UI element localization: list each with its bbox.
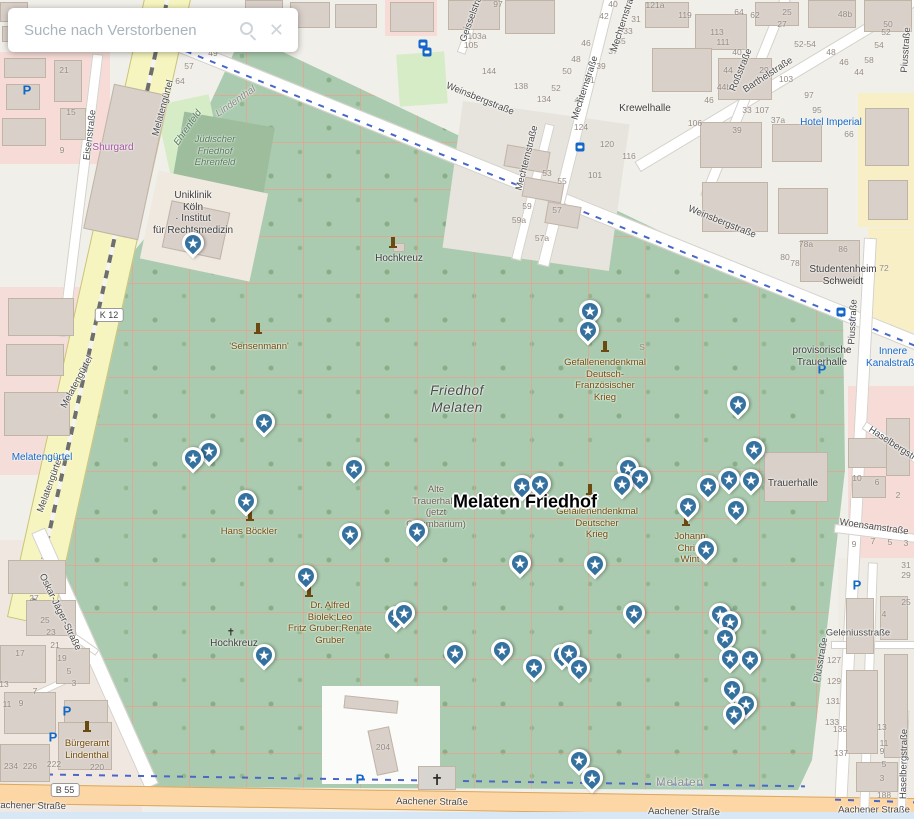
star-icon: ★ bbox=[447, 645, 463, 661]
search-box[interactable]: ✕ bbox=[8, 8, 298, 52]
house-number: 58 bbox=[864, 55, 873, 65]
poi-label-line: Ehrenfeld bbox=[195, 157, 236, 169]
parking-icon: P bbox=[853, 578, 862, 593]
street-label: Piusstraße bbox=[846, 299, 859, 345]
close-icon[interactable]: ✕ bbox=[265, 21, 288, 39]
house-number: S bbox=[639, 342, 645, 352]
poi-label: FriedhofMelaten bbox=[430, 382, 484, 416]
house-number: 39 bbox=[732, 125, 741, 135]
monument-icon bbox=[85, 721, 89, 730]
poi-label-line: Melaten bbox=[430, 399, 484, 416]
grave-pin-marker[interactable]: ★ bbox=[518, 651, 549, 682]
route-badge: K 12 bbox=[95, 308, 124, 322]
parking-icon: P bbox=[356, 772, 365, 787]
grave-pin-marker[interactable]: ★ bbox=[230, 485, 261, 516]
house-number: 9 bbox=[19, 698, 24, 708]
house-number: 50 bbox=[562, 66, 571, 76]
house-number: 48 bbox=[571, 54, 580, 64]
house-number: 9 bbox=[852, 539, 857, 549]
house-number: 80 bbox=[780, 252, 789, 262]
poi-label-line: Krieg bbox=[564, 392, 646, 404]
house-number: 52-54 bbox=[794, 39, 816, 49]
house-number: 234 bbox=[4, 761, 18, 771]
house-number: 31 bbox=[901, 560, 910, 570]
house-number: 57 bbox=[552, 205, 561, 215]
house-number: 54 bbox=[874, 40, 883, 50]
poi-label-line: Friedhof bbox=[430, 382, 484, 399]
house-number: 55 bbox=[557, 176, 566, 186]
house-number: 48 bbox=[826, 47, 835, 57]
street-label: Oskar-Jäger-Straße bbox=[37, 572, 84, 652]
house-number: 57 bbox=[184, 61, 193, 71]
house-number: 9 bbox=[60, 145, 65, 155]
poi-label-line: Studentenheim bbox=[809, 264, 876, 276]
house-number: 59a bbox=[512, 215, 526, 225]
star-icon: ★ bbox=[185, 450, 201, 466]
labels-layer: WeinsbergstraßeWeinsbergstraßeMechternst… bbox=[0, 0, 914, 819]
house-number: 57a bbox=[535, 233, 549, 243]
grave-pin-marker[interactable]: ★ bbox=[734, 643, 765, 674]
star-icon: ★ bbox=[532, 476, 548, 492]
house-number: 131 bbox=[826, 696, 840, 706]
house-number: 106 bbox=[688, 118, 702, 128]
poi-label-line: Uniklinik bbox=[153, 190, 233, 202]
house-number: 97 bbox=[804, 90, 813, 100]
street-label: Mechternstraße bbox=[569, 55, 600, 122]
house-number: 3 bbox=[880, 773, 885, 783]
house-number: 119 bbox=[678, 10, 692, 20]
poi-label: InnereKanalstraße bbox=[866, 346, 914, 369]
house-number: 7 bbox=[871, 536, 876, 546]
star-icon: ★ bbox=[512, 555, 528, 571]
house-number: 133 bbox=[825, 717, 839, 727]
star-icon: ★ bbox=[571, 752, 587, 768]
house-number: 64 bbox=[175, 76, 184, 86]
house-number: 138 bbox=[514, 81, 528, 91]
star-icon: ★ bbox=[409, 523, 425, 539]
star-icon: ★ bbox=[728, 501, 744, 517]
house-number: 62 bbox=[750, 10, 759, 20]
poi-label: Hochkreuz bbox=[210, 638, 258, 650]
grave-pin-marker[interactable]: ★ bbox=[290, 560, 321, 591]
poi-label-line: Kanalstraße bbox=[866, 358, 914, 370]
poi-label-line: Französischer bbox=[564, 380, 646, 392]
poi-label-line: Deutsch- bbox=[564, 369, 646, 381]
poi-label: Hans Böckler bbox=[221, 526, 278, 538]
house-number: 2 bbox=[896, 490, 901, 500]
house-number: 46 bbox=[839, 57, 848, 67]
street-label: Aachener Straße bbox=[838, 805, 910, 816]
poi-label: Melatengürtel bbox=[12, 452, 73, 464]
house-number: 188 bbox=[877, 790, 891, 800]
house-number: 116 bbox=[622, 151, 636, 161]
grave-pin-marker[interactable]: ★ bbox=[738, 433, 769, 464]
house-number: 40 bbox=[608, 0, 617, 9]
poi-label-line: Krieg bbox=[556, 529, 638, 541]
house-number: 66 bbox=[844, 129, 853, 139]
star-icon: ★ bbox=[256, 414, 272, 430]
poi-label-line: provisorische bbox=[793, 345, 852, 357]
street-label: Haselbergstraße bbox=[867, 424, 914, 471]
poi-label-line: Schweidt bbox=[809, 276, 876, 288]
house-number: 6 bbox=[875, 477, 880, 487]
house-number: 127 bbox=[827, 655, 841, 665]
poi-label-line: Friedhof bbox=[195, 146, 236, 158]
star-icon: ★ bbox=[746, 441, 762, 457]
house-number: 21 bbox=[59, 65, 68, 75]
house-number: 37a bbox=[771, 115, 785, 125]
grave-pin-marker[interactable]: ★ bbox=[334, 518, 365, 549]
house-number: 7 bbox=[33, 686, 38, 696]
house-number: 5 bbox=[888, 537, 893, 547]
street-label: Aachener Straße bbox=[648, 806, 720, 818]
poi-label: provisorischeTrauerhalle bbox=[793, 345, 852, 368]
house-number: 121a bbox=[646, 0, 665, 10]
street-label: Melatengürtel bbox=[59, 354, 96, 410]
grave-pin-marker[interactable]: ★ bbox=[735, 464, 766, 495]
poi-label: Hotel Imperial bbox=[800, 117, 862, 129]
star-icon: ★ bbox=[742, 651, 758, 667]
street-label: Melatengürtel bbox=[150, 79, 176, 137]
house-number: 10 bbox=[852, 473, 861, 483]
star-icon: ★ bbox=[726, 706, 742, 722]
house-number: 13 bbox=[877, 722, 886, 732]
star-icon: ★ bbox=[614, 476, 630, 492]
street-label: Aachener Straße bbox=[396, 796, 468, 808]
grave-pin-marker[interactable]: ★ bbox=[572, 314, 603, 345]
poi-label: Lindenthal bbox=[214, 84, 258, 120]
poi-label: GefallenendenkmalDeutsch-FranzösischerKr… bbox=[564, 357, 646, 403]
poi-label: UniklinikKöln· Institutfür Rechtsmedizin bbox=[153, 190, 233, 236]
poi-label-line: Hochkreuz bbox=[375, 253, 423, 265]
house-number: 29 bbox=[901, 570, 910, 580]
house-number: 222 bbox=[47, 759, 61, 769]
street-label: Haselbergstraße bbox=[898, 729, 910, 799]
house-number: 19 bbox=[57, 653, 66, 663]
house-number: 5 bbox=[882, 759, 887, 769]
street-label: Weinsbergstraße bbox=[686, 203, 757, 240]
poi-label-line: Hans Böckler bbox=[221, 526, 278, 538]
house-number: 97 bbox=[493, 0, 502, 9]
star-icon: ★ bbox=[494, 642, 510, 658]
star-icon: ★ bbox=[396, 605, 412, 621]
house-number: 95 bbox=[812, 105, 821, 115]
house-number: 21 bbox=[50, 640, 59, 650]
poi-label-line: Melaten bbox=[656, 778, 704, 790]
house-number: 78a bbox=[799, 239, 813, 249]
star-icon: ★ bbox=[632, 470, 648, 486]
monument-icon bbox=[256, 323, 260, 332]
star-icon: ★ bbox=[584, 770, 600, 786]
search-icon[interactable] bbox=[240, 22, 253, 35]
parking-icon: P bbox=[63, 704, 72, 719]
star-icon: ★ bbox=[342, 526, 358, 542]
house-number: 31 bbox=[631, 14, 640, 24]
star-icon: ★ bbox=[626, 605, 642, 621]
house-number: 25 bbox=[40, 615, 49, 625]
star-icon: ★ bbox=[730, 396, 746, 412]
poi-label-line: Trauerhalle bbox=[768, 478, 818, 490]
house-number: 9 bbox=[880, 746, 885, 756]
poi-label-line: Hotel Imperial bbox=[800, 117, 862, 129]
poi-label-line: Innere bbox=[866, 346, 914, 358]
poi-label-line: Dr. Alfred bbox=[288, 600, 372, 612]
grave-pin-marker[interactable]: ★ bbox=[722, 388, 753, 419]
transit-stop-icon bbox=[837, 308, 846, 317]
star-icon: ★ bbox=[580, 322, 596, 338]
poi-label: Krewelhalle bbox=[619, 103, 671, 115]
grave-pin-marker[interactable]: ★ bbox=[439, 637, 470, 668]
poi-label-line: 'Sensenmann' bbox=[229, 341, 289, 353]
star-icon: ★ bbox=[238, 493, 254, 509]
poi-label-line: Trauerhalle bbox=[793, 357, 852, 369]
house-number: 86 bbox=[838, 244, 847, 254]
house-number: 107 bbox=[755, 105, 769, 115]
star-icon: ★ bbox=[185, 235, 201, 251]
poi-label-line: Gruber bbox=[288, 635, 372, 647]
house-number: 101 bbox=[588, 170, 602, 180]
map-edge-strip bbox=[0, 812, 914, 819]
house-number: 120 bbox=[600, 139, 614, 149]
grave-pin-marker[interactable]: ★ bbox=[338, 452, 369, 483]
house-number: 33 bbox=[742, 105, 751, 115]
poi-label-line: Bürgeramt bbox=[65, 738, 109, 750]
house-number: 52 bbox=[551, 83, 560, 93]
star-icon: ★ bbox=[587, 556, 603, 572]
star-icon: ★ bbox=[526, 659, 542, 675]
house-number: 204 bbox=[376, 742, 390, 752]
map-canvas[interactable]: WeinsbergstraßeWeinsbergstraßeMechternst… bbox=[0, 0, 914, 819]
star-icon: ★ bbox=[346, 460, 362, 476]
route-badge: B 55 bbox=[51, 783, 80, 797]
poi-label-line: Lindenthal bbox=[214, 84, 258, 120]
grave-pin-marker[interactable]: ★ bbox=[672, 490, 703, 521]
grave-pin-marker[interactable]: ★ bbox=[579, 548, 610, 579]
poi-label-line: Jüdischer bbox=[195, 134, 236, 146]
poi-label: StudentenheimSchweidt bbox=[809, 264, 876, 287]
house-number: 4 bbox=[882, 609, 887, 619]
house-number: 44 bbox=[854, 67, 863, 77]
house-number: 103 bbox=[779, 74, 793, 84]
star-icon: ★ bbox=[700, 478, 716, 494]
house-number: 44 bbox=[723, 65, 732, 75]
monument-icon bbox=[391, 237, 395, 246]
poi-label-line: Biolek;Leo bbox=[288, 612, 372, 624]
star-icon: ★ bbox=[722, 650, 738, 666]
poi-label: Melaten bbox=[656, 778, 704, 790]
house-number: 72 bbox=[879, 263, 888, 273]
poi-label-line: Deutscher bbox=[556, 518, 638, 530]
star-icon: ★ bbox=[298, 568, 314, 584]
parking-icon: P bbox=[49, 730, 58, 745]
grave-pin-marker[interactable]: ★ bbox=[248, 406, 279, 437]
house-number: 13 bbox=[0, 679, 9, 689]
grave-pin-marker[interactable]: ★ bbox=[486, 634, 517, 665]
poi-label-line: Melatengürtel bbox=[12, 452, 73, 464]
house-number: 226 bbox=[23, 761, 37, 771]
poi-label: BürgeramtLindenthal bbox=[65, 738, 109, 761]
star-icon: ★ bbox=[582, 303, 598, 319]
poi-label: JüdischerFriedhofEhrenfeld bbox=[195, 134, 236, 169]
star-icon: ★ bbox=[256, 647, 272, 663]
house-number: 3 bbox=[904, 538, 909, 548]
street-label: Mechternstraße bbox=[514, 124, 541, 191]
cross-icon: ✝ bbox=[431, 771, 444, 789]
poi-label-line: Hochkreuz bbox=[210, 638, 258, 650]
house-number: 53 bbox=[542, 168, 551, 178]
poi-label-line: Gefallenendenkmal bbox=[564, 357, 646, 369]
house-number: 111 bbox=[717, 37, 730, 47]
house-number: 59 bbox=[522, 201, 531, 211]
house-number: 46 bbox=[704, 95, 713, 105]
house-number: 5 bbox=[67, 666, 72, 676]
star-icon: ★ bbox=[680, 498, 696, 514]
house-number: 11 bbox=[3, 699, 12, 709]
poi-label-line: Fritz Gruber;Renate bbox=[288, 623, 372, 635]
poi-label: Dr. AlfredBiolek;LeoFritz Gruber;RenateG… bbox=[288, 600, 372, 646]
star-icon: ★ bbox=[571, 660, 587, 676]
grave-pin-marker[interactable]: ★ bbox=[618, 597, 649, 628]
street-label: Geleniusstraße bbox=[826, 628, 890, 639]
monument-icon bbox=[603, 341, 607, 350]
house-number: 27 bbox=[777, 19, 786, 29]
house-number: 78 bbox=[790, 258, 799, 268]
poi-label-line: Köln bbox=[153, 202, 233, 214]
poi-label: Trauerhalle bbox=[768, 478, 818, 490]
house-number: 134 bbox=[537, 94, 551, 104]
street-label: Weinsbergstraße bbox=[444, 80, 515, 117]
poi-label-line: Shurgard bbox=[92, 142, 133, 154]
star-icon: ★ bbox=[724, 681, 740, 697]
house-number: 129 bbox=[827, 676, 841, 686]
street-label: Woensamstraße bbox=[839, 517, 909, 538]
house-number: 113 bbox=[710, 27, 724, 37]
star-icon: ★ bbox=[698, 541, 714, 557]
house-number: 42 bbox=[599, 11, 608, 21]
street-label: Aachener Straße bbox=[0, 800, 66, 812]
house-number: 15 bbox=[66, 107, 75, 117]
street-label: Piusstraße bbox=[899, 27, 913, 73]
poi-label: Shurgard bbox=[92, 142, 133, 154]
street-label: Melatengürtel bbox=[35, 456, 65, 514]
grave-pin-marker[interactable]: ★ bbox=[504, 547, 535, 578]
house-number: 220 bbox=[90, 762, 104, 772]
poi-label: Hochkreuz bbox=[375, 253, 423, 265]
poi-label-line: Krewelhalle bbox=[619, 103, 671, 115]
house-number: 17 bbox=[15, 648, 24, 658]
house-number: 64 bbox=[734, 7, 743, 17]
house-number: 124 bbox=[574, 122, 588, 132]
house-number: 48b bbox=[838, 9, 852, 19]
house-number: 144 bbox=[482, 66, 496, 76]
house-number: 46 bbox=[581, 38, 590, 48]
house-number: 27 bbox=[29, 593, 38, 603]
star-icon: ★ bbox=[717, 630, 733, 646]
house-number: 25 bbox=[782, 7, 791, 17]
parking-icon: P bbox=[23, 83, 32, 98]
search-input[interactable] bbox=[22, 21, 236, 40]
poi-label-line: Lindenthal bbox=[65, 750, 109, 762]
cross-icon: ✝ bbox=[227, 628, 235, 639]
star-icon: ★ bbox=[514, 478, 530, 494]
grave-pin-marker[interactable]: ★ bbox=[720, 493, 751, 524]
house-number: 25 bbox=[901, 597, 910, 607]
house-number: 23 bbox=[46, 627, 55, 637]
star-icon: ★ bbox=[721, 471, 737, 487]
poi-label-line: · Institut bbox=[153, 213, 233, 225]
transit-stop-icon bbox=[576, 143, 585, 152]
poi-label: 'Sensenmann' bbox=[229, 341, 289, 353]
house-number: 3 bbox=[72, 678, 77, 688]
star-icon: ★ bbox=[743, 472, 759, 488]
transit-stop-icon bbox=[423, 48, 432, 57]
house-number: 137 bbox=[834, 748, 848, 758]
house-number: 52 bbox=[881, 27, 890, 37]
